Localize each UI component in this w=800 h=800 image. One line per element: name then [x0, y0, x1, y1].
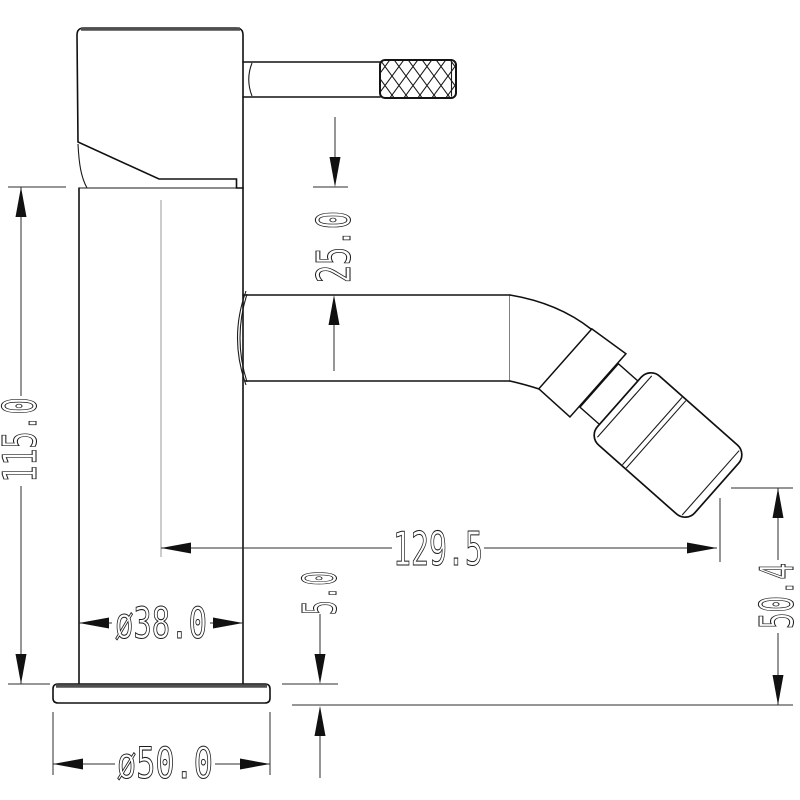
dim-label-outlet-height: 50.4 [750, 563, 800, 629]
dim-label-handle-to-spout: 25.0 [307, 211, 361, 283]
dim-base-thickness: 5.0 [282, 571, 793, 778]
arrowhead-right [240, 759, 270, 770]
spout [238, 291, 592, 389]
dim-label-base-diameter: ø50.0 [117, 739, 213, 789]
arrowhead-down [16, 654, 27, 684]
arrowhead-right [213, 618, 243, 629]
arrowhead-right [687, 543, 717, 554]
arrowhead-down [773, 675, 784, 705]
dim-spout-reach: 129.5 [161, 498, 720, 576]
dim-label-body-diameter: ø38.0 [115, 599, 207, 649]
lever-root-arc [249, 63, 252, 96]
dim-label-spout-reach: 129.5 [393, 522, 483, 576]
dim-base-diameter: ø50.0 [53, 712, 270, 789]
handle-lever [243, 60, 456, 98]
faucet-head [77, 28, 243, 188]
technical-drawing-faucet: 115.0 25.0 129.5 50.4 5.0 [0, 0, 800, 800]
arrowhead-left [53, 759, 83, 770]
head-shoulder-arc [78, 144, 87, 188]
arrowhead-up [315, 706, 326, 736]
dim-body-diameter: ø38.0 [79, 599, 243, 649]
arrowhead-up [16, 187, 27, 217]
arrowhead-left [161, 543, 191, 554]
dim-label-base-thickness: 5.0 [293, 571, 347, 615]
arrowhead-left [79, 618, 109, 629]
arrowhead-down [315, 654, 326, 684]
dim-label-overall-height: 115.0 [0, 398, 47, 483]
arrowhead-up [329, 295, 340, 325]
arrowhead-up [773, 488, 784, 518]
dim-handle-to-spout: 25.0 [307, 117, 361, 371]
knurled-grip [380, 60, 456, 98]
dim-outlet-height: 50.4 [731, 488, 800, 705]
head-outline [77, 28, 243, 188]
spout-root-arc-outer [238, 291, 247, 385]
base-plate [53, 684, 270, 703]
dim-overall-height: 115.0 [0, 187, 66, 684]
arrowhead-down [330, 157, 341, 187]
